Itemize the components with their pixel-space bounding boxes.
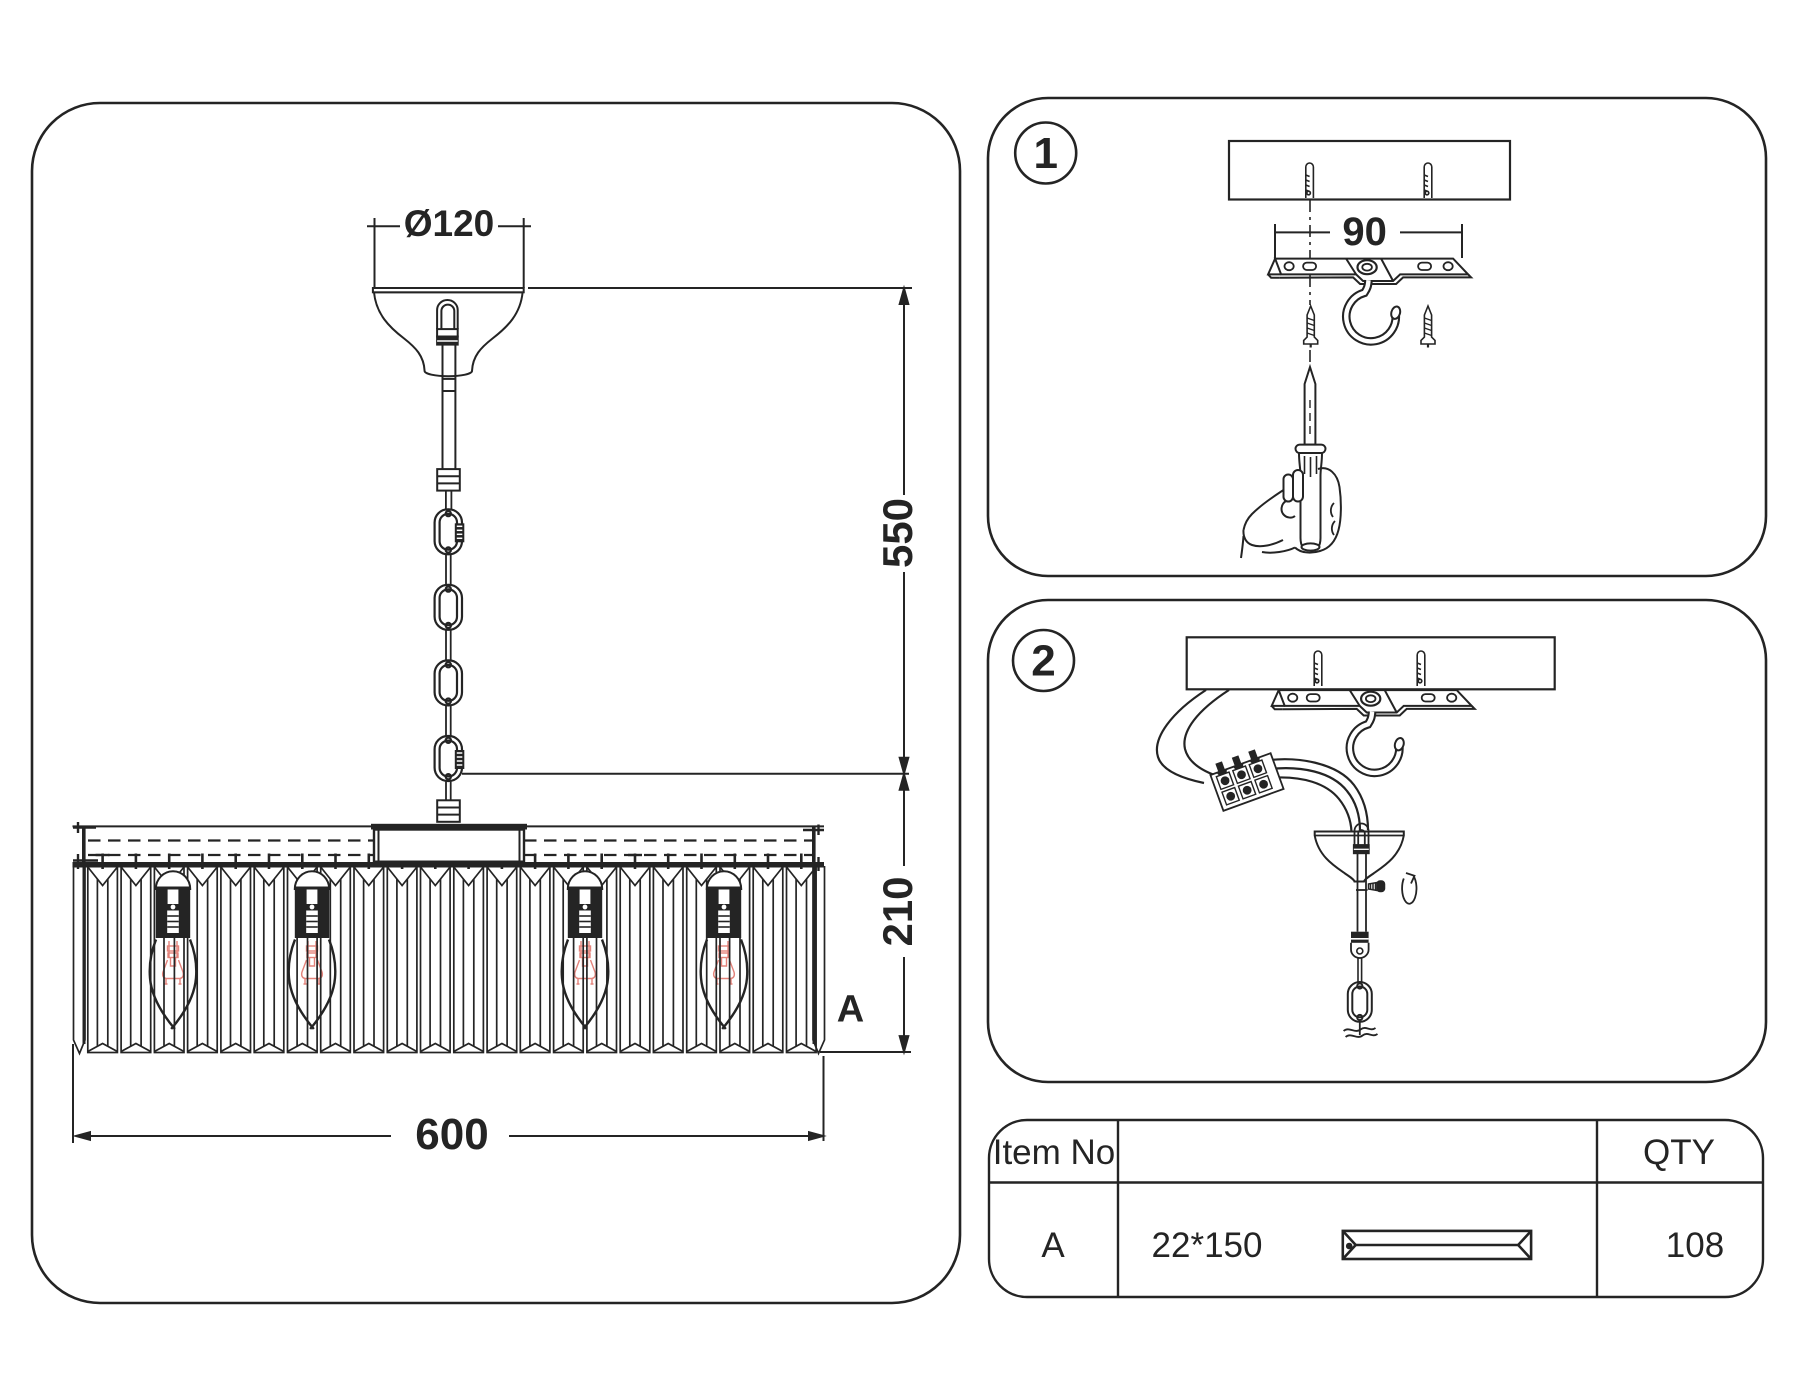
svg-text:QTY: QTY bbox=[1643, 1133, 1715, 1172]
svg-text:22*150: 22*150 bbox=[1152, 1226, 1263, 1265]
svg-text:90: 90 bbox=[1342, 210, 1387, 254]
svg-text:Item No: Item No bbox=[993, 1133, 1116, 1172]
svg-text:108: 108 bbox=[1666, 1226, 1724, 1265]
svg-text:A: A bbox=[1041, 1226, 1065, 1265]
svg-text:2: 2 bbox=[1031, 637, 1055, 686]
svg-text:550: 550 bbox=[874, 498, 921, 568]
svg-text:210: 210 bbox=[874, 876, 921, 946]
svg-text:1: 1 bbox=[1033, 129, 1057, 178]
svg-text:Ø120: Ø120 bbox=[404, 203, 495, 244]
svg-text:600: 600 bbox=[415, 1110, 488, 1159]
svg-text:A: A bbox=[837, 989, 864, 1031]
